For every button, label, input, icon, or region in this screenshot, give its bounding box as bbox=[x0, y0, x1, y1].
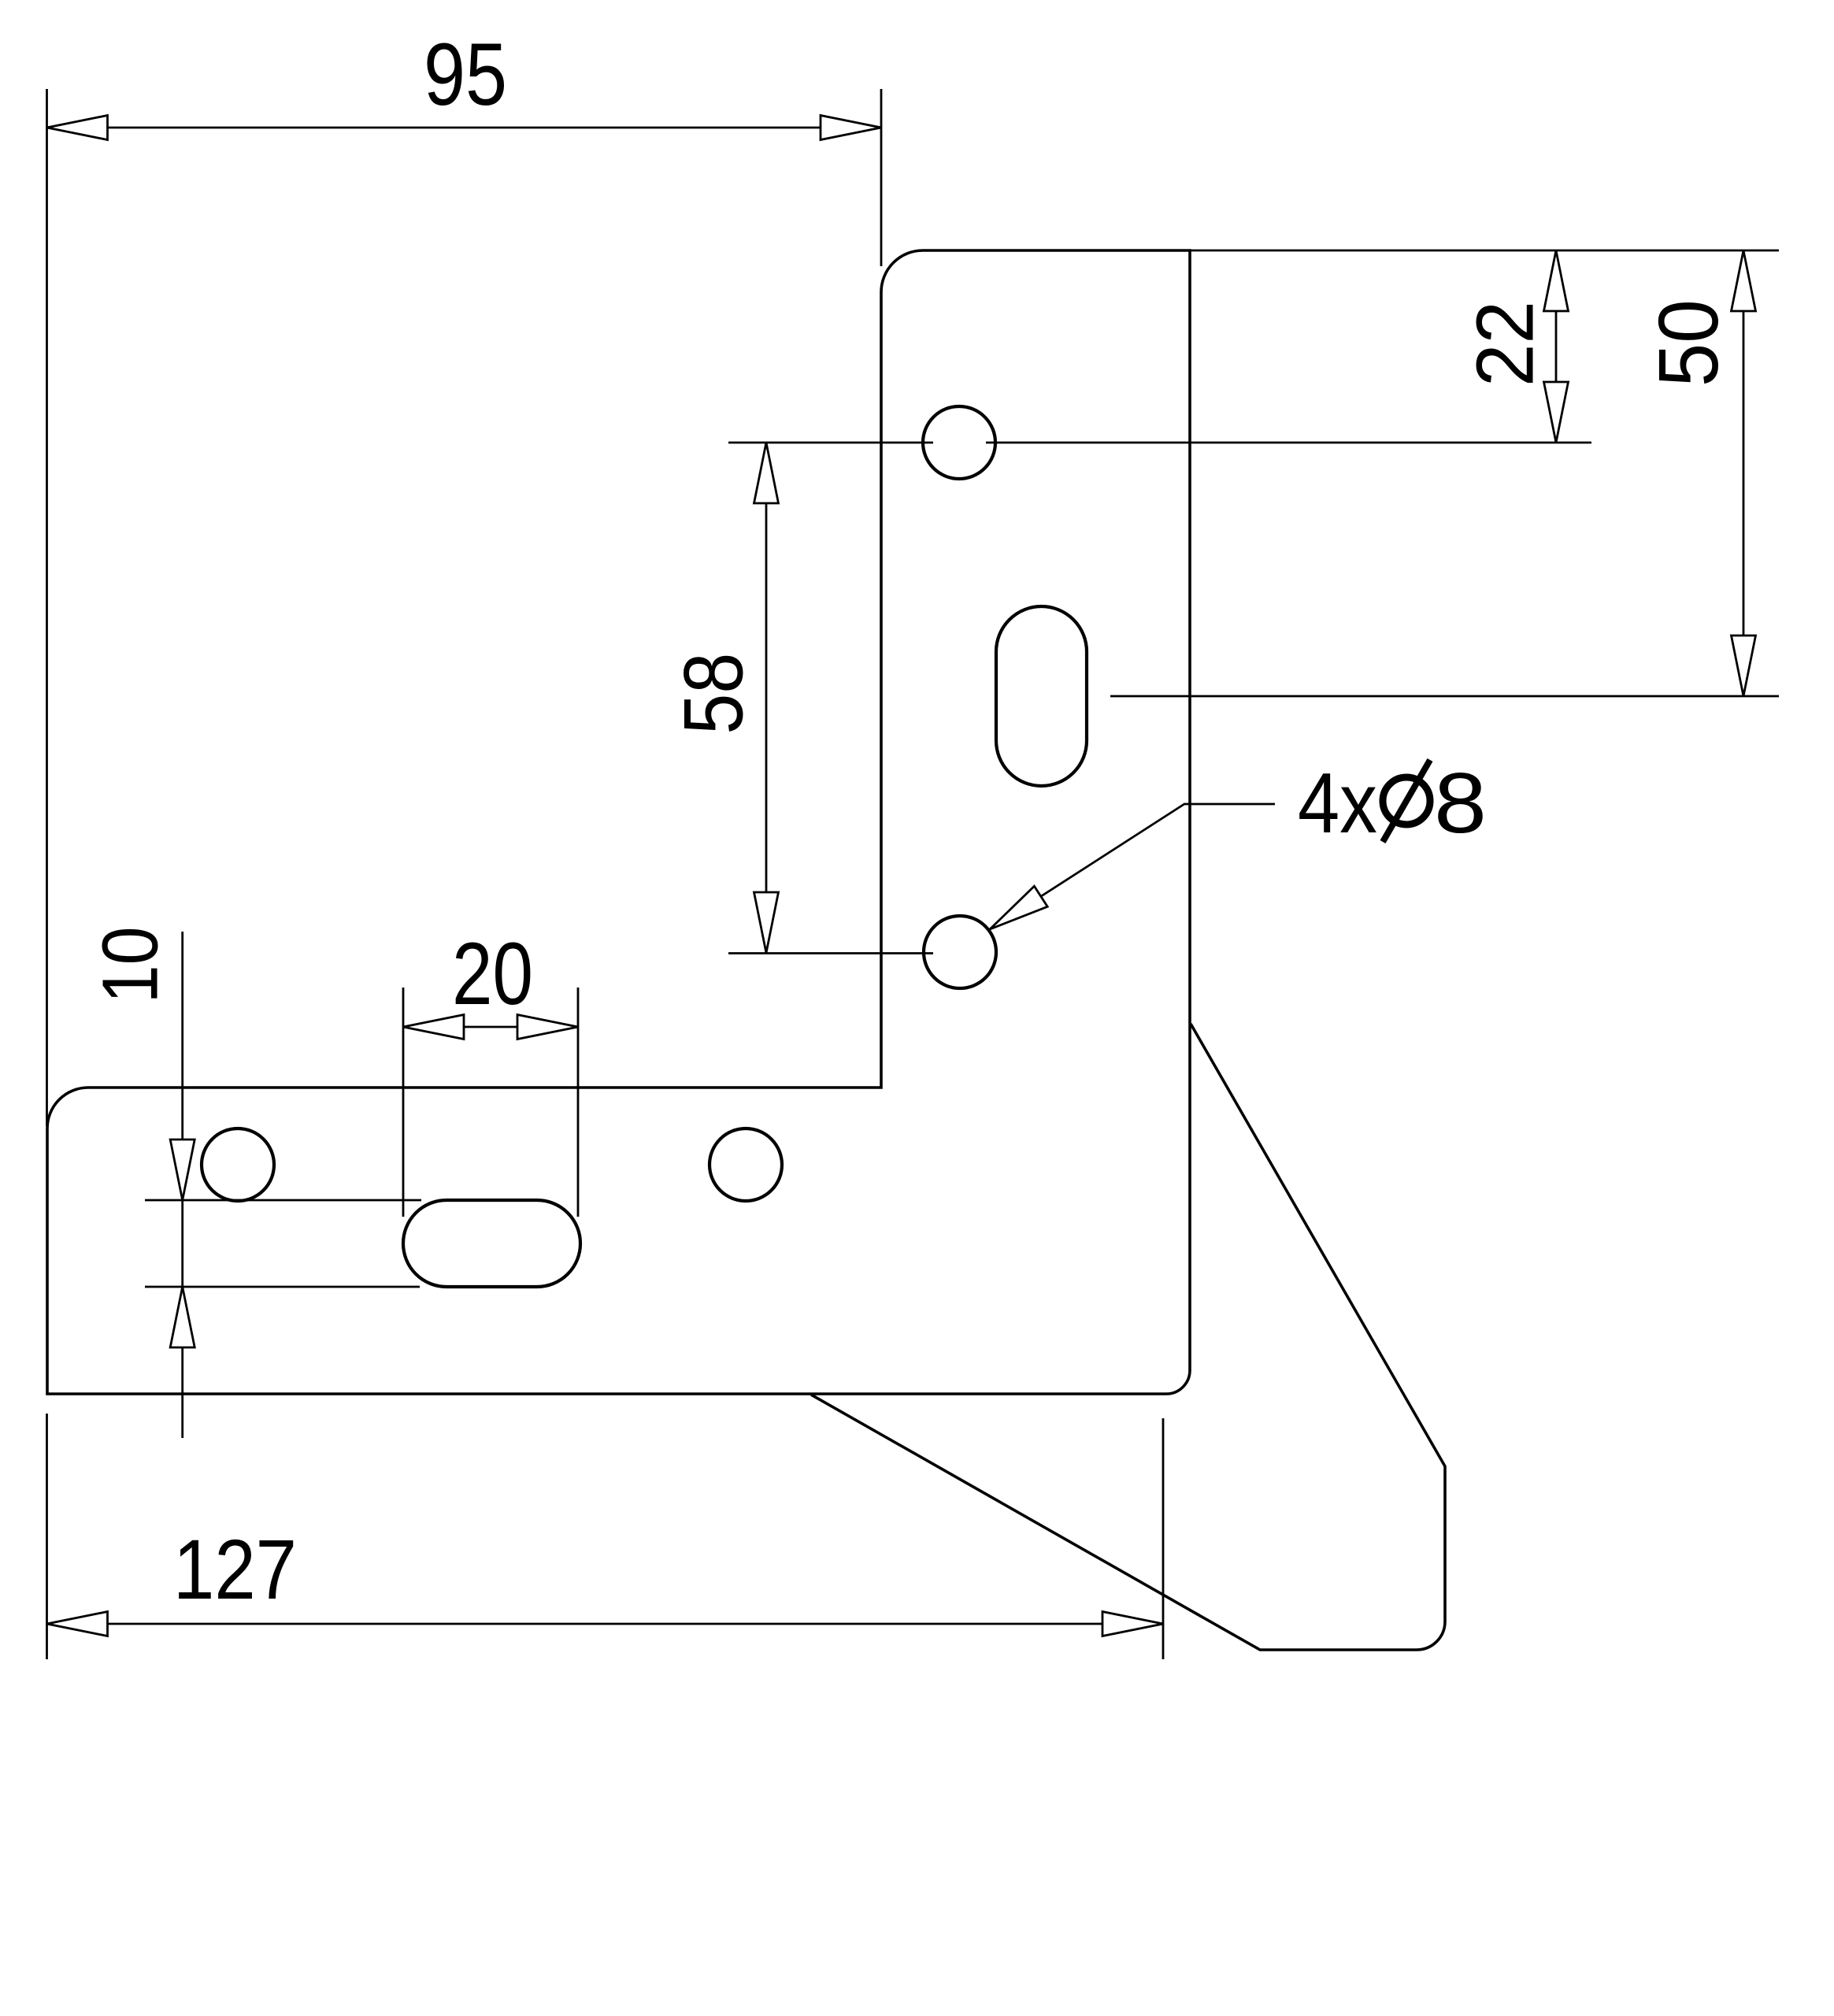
svg-text:8: 8 bbox=[1434, 755, 1487, 851]
svg-text:10: 10 bbox=[86, 926, 174, 1003]
svg-text:95: 95 bbox=[424, 25, 507, 124]
svg-text:58: 58 bbox=[665, 653, 760, 735]
svg-text:22: 22 bbox=[1459, 301, 1550, 387]
svg-text:4x: 4x bbox=[1298, 755, 1377, 851]
svg-text:20: 20 bbox=[452, 925, 533, 1023]
svg-text:50: 50 bbox=[1640, 299, 1736, 387]
svg-text:127: 127 bbox=[173, 1521, 297, 1617]
